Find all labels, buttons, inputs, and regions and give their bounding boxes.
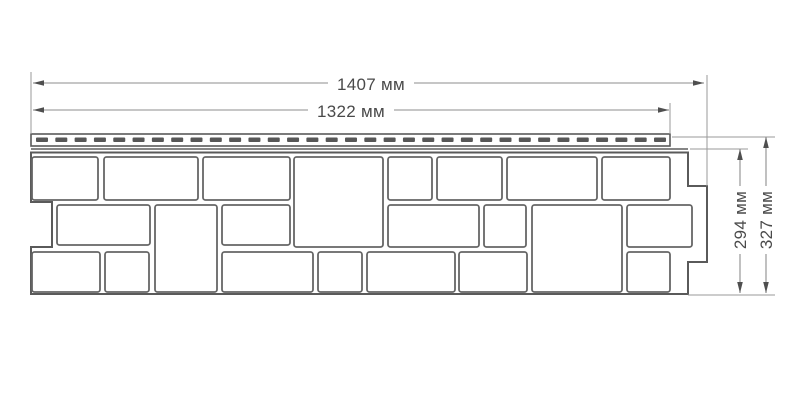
drawing-canvas: 1407 мм1322 мм294 мм327 мм bbox=[0, 0, 800, 400]
perforation-slot bbox=[326, 138, 338, 143]
perforation-slot bbox=[171, 138, 183, 143]
stone-block bbox=[104, 157, 198, 200]
nail-strip bbox=[31, 134, 670, 146]
perforation-slot bbox=[615, 138, 627, 143]
perforation-slot bbox=[75, 138, 87, 143]
perforation-slot bbox=[384, 138, 396, 143]
perforation-slot bbox=[654, 138, 666, 143]
perforation-slot bbox=[94, 138, 106, 143]
perforation-slot bbox=[461, 138, 473, 143]
perforation-slot bbox=[210, 138, 222, 143]
perforation-slot bbox=[229, 138, 241, 143]
stone-block bbox=[222, 252, 313, 292]
stone-block bbox=[294, 157, 383, 247]
stone-block bbox=[388, 157, 432, 200]
stone-block bbox=[367, 252, 455, 292]
stone-block bbox=[32, 157, 98, 200]
perforation-slot bbox=[306, 138, 318, 143]
stone-block bbox=[57, 205, 150, 245]
perforation-slot bbox=[268, 138, 280, 143]
perforation-slot bbox=[480, 138, 492, 143]
stone-block bbox=[484, 205, 526, 247]
perforation-slot bbox=[538, 138, 550, 143]
panel-technical-drawing: 1407 мм1322 мм294 мм327 мм bbox=[0, 0, 800, 400]
stone-block bbox=[459, 252, 527, 292]
dimension-label-useful-width: 1322 мм bbox=[317, 102, 385, 121]
stone-block bbox=[222, 205, 290, 245]
stone-block bbox=[437, 157, 502, 200]
perforation-slot bbox=[287, 138, 299, 143]
stone-block bbox=[388, 205, 479, 247]
perforation-slot bbox=[519, 138, 531, 143]
perforation-slot bbox=[596, 138, 608, 143]
dimension-label-overall-width: 1407 мм bbox=[337, 75, 405, 94]
perforation-slot bbox=[55, 138, 67, 143]
perforation-slot bbox=[113, 138, 125, 143]
stone-block bbox=[32, 252, 100, 292]
perforation-slot bbox=[152, 138, 164, 143]
stone-block bbox=[155, 205, 217, 292]
stone-block bbox=[203, 157, 290, 200]
dimension-arrow bbox=[763, 137, 769, 148]
perforation-slot bbox=[500, 138, 512, 143]
perforation-slot bbox=[36, 138, 48, 143]
dimension-arrow bbox=[763, 282, 769, 293]
dimension-label-overall-height: 327 мм bbox=[757, 191, 776, 249]
perforation-slot bbox=[248, 138, 260, 143]
perforation-slot bbox=[403, 138, 415, 143]
stone-block bbox=[507, 157, 597, 200]
stone-pattern bbox=[32, 157, 692, 292]
perforation-slot bbox=[557, 138, 569, 143]
perforation-slot bbox=[635, 138, 647, 143]
perforation-slot bbox=[345, 138, 357, 143]
perforation-slot bbox=[577, 138, 589, 143]
dimension-arrow bbox=[737, 149, 743, 160]
perforation-slot bbox=[364, 138, 376, 143]
stone-block bbox=[627, 252, 670, 292]
dimension-arrow bbox=[658, 107, 669, 113]
perforation-slot bbox=[422, 138, 434, 143]
dimension-arrow bbox=[33, 80, 44, 86]
perforation-slot bbox=[442, 138, 454, 143]
stone-block bbox=[602, 157, 670, 200]
dimension-arrow bbox=[693, 80, 704, 86]
dimension-arrow bbox=[33, 107, 44, 113]
dimension-label-useful-height: 294 мм bbox=[731, 191, 750, 249]
stone-block bbox=[105, 252, 149, 292]
perforation-slot bbox=[191, 138, 203, 143]
stone-block bbox=[532, 205, 622, 292]
stone-block bbox=[318, 252, 362, 292]
perforation-slot bbox=[133, 138, 145, 143]
dimension-arrow bbox=[737, 282, 743, 293]
stone-block bbox=[627, 205, 692, 247]
